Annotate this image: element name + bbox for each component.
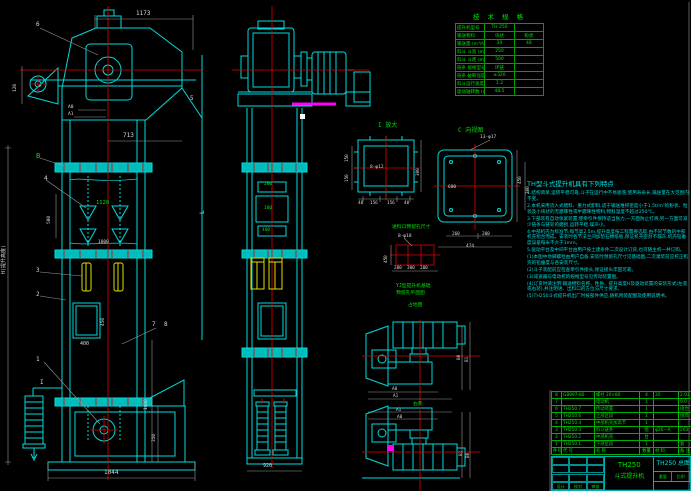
table-cell bbox=[514, 48, 543, 56]
table-row: 1TH250.1下部区段1套 bbox=[552, 441, 691, 448]
note-line: 1.结构简单,运转平稳可靠,斗子在运行中不易脱落,使用寿命长,输送量在大范围内不… bbox=[527, 191, 689, 203]
dimension-label: 右装 bbox=[413, 403, 423, 408]
table-cell: 1.2 bbox=[485, 80, 514, 88]
sign-label: 设计 bbox=[552, 482, 569, 490]
table-cell: 2.03 bbox=[679, 392, 691, 399]
dimension-label: 156 bbox=[387, 202, 395, 206]
table-cell: 9.0 bbox=[679, 399, 691, 406]
table-cell: 1 bbox=[552, 441, 562, 448]
table-row: 驱动轴转数 (r/min)48.5 bbox=[456, 88, 544, 96]
dimension-label: 400 bbox=[80, 342, 89, 347]
table-row: 5TH250.6上部区段1组焊 bbox=[552, 413, 691, 420]
table-cell: TH250.6 bbox=[562, 413, 595, 420]
dimension-label: B0 bbox=[458, 355, 462, 360]
dimension-label: 1173 bbox=[136, 11, 150, 17]
table-cell: 6 bbox=[552, 406, 562, 413]
table-row: 料斗 斗距 (mm)500 bbox=[456, 56, 544, 64]
dimension-label: 8 bbox=[164, 322, 168, 328]
note-line: 3.下部装有自动张紧装置,使牵引件保持适当张力,一方面防止打滑,另一方面可减少链… bbox=[527, 217, 689, 229]
dimension-label: 120 bbox=[14, 84, 19, 92]
dimension-label: 1 bbox=[36, 357, 40, 363]
table-cell bbox=[514, 88, 543, 96]
bom-table: 8GB897-86螺柱 20×804352.037电动机19.06TH250.7… bbox=[551, 391, 691, 455]
table-cell: 1 bbox=[640, 406, 654, 413]
table-cell: 上部区段 bbox=[595, 413, 640, 420]
dimension-label: A0 bbox=[392, 388, 397, 392]
note-line: (5)TH250斗式提升机出厂时按部件供应,随机附装配图及使用说明书。 bbox=[527, 294, 689, 300]
dimension-label: 6 bbox=[36, 22, 40, 28]
dimension-label: 8-φ12 bbox=[370, 166, 384, 171]
dimension-label: 占地图 bbox=[408, 304, 422, 309]
table-cell: 链条 规格型号 bbox=[456, 64, 485, 72]
table-cell: 7 bbox=[552, 399, 562, 406]
table-cell: 提升机型号 bbox=[456, 24, 485, 32]
cad-drawing-canvas: 61173120A0A17135B45001120100032LH(提升高度)4… bbox=[0, 0, 691, 491]
dimension-label: A0 bbox=[68, 106, 73, 111]
table-cell: 环链 bbox=[485, 64, 514, 72]
table-cell: 中部机壳加高节 bbox=[595, 420, 640, 427]
table-cell bbox=[654, 420, 679, 427]
table-cell: 48 bbox=[514, 40, 543, 48]
dimension-label: 150 bbox=[346, 174, 350, 182]
dimension-label: A1 bbox=[396, 409, 401, 413]
table-cell: ≥320 bbox=[485, 72, 514, 80]
dimension-label: 1400 bbox=[145, 399, 150, 410]
table-cell bbox=[514, 64, 543, 72]
table-cell: 8 bbox=[552, 392, 562, 399]
table-row: 件号代 号名 称数量材 料备 注 bbox=[552, 448, 691, 455]
notes-title: TH型斗式提升机具有下列特点 bbox=[527, 180, 689, 188]
dimension-label: 450 bbox=[519, 176, 523, 184]
dimension-label: 2 bbox=[36, 292, 40, 298]
machine-name-label: 斗式提升机 bbox=[605, 471, 653, 480]
dimension-label: L bbox=[200, 210, 206, 214]
dimension-label: I bbox=[40, 380, 44, 386]
dimension-label: 3 bbox=[36, 268, 40, 274]
dimension-label: 200 bbox=[420, 267, 428, 271]
table-cell: 数量 bbox=[640, 448, 654, 455]
notes-panel: TH型斗式提升机具有下列特点 1.结构简单,运转平稳可靠,斗子在运行中不易脱落,… bbox=[527, 180, 689, 301]
dimension-label: YJ型提升机基础 bbox=[396, 285, 431, 290]
table-cell: 螺柱 20×80 bbox=[595, 392, 640, 399]
dimension-label: B0 bbox=[467, 453, 471, 458]
dimension-label: 600 bbox=[448, 186, 456, 191]
dimension-label: 450 bbox=[385, 255, 389, 263]
dimension-label: B1 bbox=[466, 357, 470, 362]
dimension-label: 5 bbox=[190, 96, 194, 102]
table-cell bbox=[654, 413, 679, 420]
table-cell: 4 bbox=[640, 392, 654, 399]
note-line: 5.驱动平台及中间平台由用户按土建条件二次设计订货,也可随主机一并订购。 bbox=[527, 248, 689, 254]
dimension-label: 1000 bbox=[98, 241, 109, 246]
table-cell: 2 bbox=[552, 434, 562, 441]
table-row: 料斗运行速度 (m/s)1.2 bbox=[456, 80, 544, 88]
table-row: 提升机型号TH 250 bbox=[456, 24, 544, 32]
dimension-label: B bbox=[36, 153, 40, 160]
table-cell: 1 bbox=[640, 399, 654, 406]
dimension-label: 500 bbox=[48, 216, 53, 224]
table-cell bbox=[654, 399, 679, 406]
table-cell bbox=[562, 399, 595, 406]
spec-table-panel: 技 术 规 格 提升机型号TH 250输送物料块状粉状输送量 (m³/h)304… bbox=[455, 11, 544, 96]
dimension-label: 进料口预留孔尺寸 bbox=[392, 226, 430, 231]
table-cell: GB897-86 bbox=[562, 392, 595, 399]
side-elevation-view bbox=[238, 21, 370, 464]
table-cell: 30 bbox=[485, 40, 514, 48]
table-cell: 35 bbox=[654, 392, 679, 399]
detail-views bbox=[354, 136, 512, 478]
scale-label: 比例 bbox=[672, 472, 690, 481]
table-cell: 203 bbox=[679, 427, 691, 434]
table-cell: 输送物料 bbox=[456, 32, 485, 40]
dimension-label: A1 bbox=[68, 113, 73, 118]
table-cell: 4 bbox=[552, 420, 562, 427]
table-cell bbox=[514, 80, 543, 88]
model-label: TH250 bbox=[605, 461, 653, 469]
table-cell: 输送量 (m³/h) bbox=[456, 40, 485, 48]
dimension-label: 200 bbox=[482, 233, 490, 237]
dimension-label: B1 bbox=[460, 451, 464, 456]
dimension-label: A0 bbox=[397, 416, 402, 420]
magenta-marker bbox=[387, 445, 394, 451]
white-marker bbox=[300, 114, 305, 119]
table-row: 3TH250.3料斗链条组φ26—A203 bbox=[552, 427, 691, 434]
table-cell: TH250.3 bbox=[562, 427, 595, 434]
table-row: 输送量 (m³/h)3048 bbox=[456, 40, 544, 48]
table-cell: TH 250 bbox=[485, 24, 514, 32]
sign-label: 审核 bbox=[587, 482, 604, 490]
table-cell bbox=[679, 434, 691, 441]
table-row: 6TH250.7传动装置1组合 bbox=[552, 406, 691, 413]
dimension-label: 8-φ18 bbox=[398, 235, 412, 240]
table-cell: 块状 bbox=[485, 32, 514, 40]
table-cell: φ26—A bbox=[654, 427, 679, 434]
table-cell: 组 bbox=[640, 427, 654, 434]
dimension-label: 156 bbox=[370, 202, 378, 206]
table-row: 7电动机19.0 bbox=[552, 399, 691, 406]
dimension-label: 4 bbox=[44, 176, 48, 182]
dimension-label: 300 bbox=[417, 168, 421, 176]
dimension-label: 713 bbox=[123, 133, 134, 139]
table-cell bbox=[654, 441, 679, 448]
dimension-label: 300 bbox=[407, 267, 415, 271]
table-cell: 料斗链条 bbox=[595, 427, 640, 434]
table-cell bbox=[679, 420, 691, 427]
note-line: (1)本图中地脚螺栓由用户自备,安装时预留孔尺寸见基础图,二次灌浆前应校正机壳的… bbox=[527, 255, 689, 267]
table-cell bbox=[654, 434, 679, 441]
dimension-label: C 向视图 bbox=[458, 128, 483, 134]
dimension-label: 40 bbox=[358, 202, 363, 206]
table-cell bbox=[514, 72, 543, 80]
dimension-label: 200 bbox=[394, 267, 402, 271]
table-cell: TH250.2 bbox=[562, 434, 595, 441]
dimension-label: 350 bbox=[153, 434, 158, 442]
dimension-label: 1120 bbox=[96, 201, 109, 207]
title-block: 设计 校对 审核 TH250 斗式提升机 TH250 总图 重量 比例 bbox=[551, 456, 691, 491]
table-cell: 材 料 bbox=[654, 448, 679, 455]
table-cell bbox=[654, 406, 679, 413]
note-line: (2)斗子装配前应检查牵引件接头,保证接头牢固可靠。 bbox=[527, 268, 689, 274]
table-cell: 粉状 bbox=[514, 32, 543, 40]
table-cell: 组合 bbox=[679, 406, 691, 413]
dimension-label: I 放大 bbox=[378, 123, 397, 129]
table-cell: 名 称 bbox=[595, 448, 640, 455]
dimension-label: 13-φ17 bbox=[480, 136, 496, 141]
table-cell: 电动机 bbox=[595, 399, 640, 406]
table-cell: 1 bbox=[640, 441, 654, 448]
table-cell: TH250.4 bbox=[562, 420, 595, 427]
dimension-label: 920 bbox=[263, 464, 272, 469]
table-cell bbox=[514, 24, 543, 32]
table-cell: 件号 bbox=[552, 448, 562, 455]
signature-grid: 设计 校对 审核 bbox=[552, 457, 605, 490]
dimension-label: 1044 bbox=[104, 470, 118, 476]
table-row: 2TH250.2中部机壳台 bbox=[552, 434, 691, 441]
dimension-label: 40 bbox=[404, 202, 409, 206]
table-cell: 套 bbox=[679, 441, 691, 448]
dimension-label: 150 bbox=[346, 154, 350, 162]
drawing-title-cell: TH250 斗式提升机 bbox=[605, 457, 654, 490]
table-cell: 代 号 bbox=[562, 448, 595, 455]
table-row: 4TH250.4中部机壳加高节1 bbox=[552, 420, 691, 427]
table-cell: 料斗运行速度 (m/s) bbox=[456, 80, 485, 88]
table-cell: 500 bbox=[485, 56, 514, 64]
table-row: 链条 破断强度 (kN)≥320 bbox=[456, 72, 544, 80]
drawing-number-cell: TH250 总图 重量 比例 bbox=[654, 457, 690, 490]
table-cell: 驱动轴转数 (r/min) bbox=[456, 88, 485, 96]
table-cell: 台 bbox=[640, 434, 654, 441]
dimension-label: H(提升高度) bbox=[2, 245, 7, 274]
table-cell: TH250.7 bbox=[562, 406, 595, 413]
note-line: 2.本机采用流入式喂料、重力式卸料,适于输送堆积密度小于1.5t/m³的粉状、粒… bbox=[527, 204, 689, 216]
table-row: 输送物料块状粉状 bbox=[456, 32, 544, 40]
table-cell: 250 bbox=[485, 48, 514, 56]
bom-panel: 8GB897-86螺柱 20×804352.037电动机19.06TH250.7… bbox=[551, 391, 691, 455]
table-cell: 3 bbox=[552, 427, 562, 434]
table-cell: 5 bbox=[552, 413, 562, 420]
dimension-label: 400 bbox=[262, 229, 270, 234]
table-cell: 48.5 bbox=[485, 88, 514, 96]
table-cell: 下部区段 bbox=[595, 441, 640, 448]
table-cell bbox=[514, 56, 543, 64]
table-cell: 组焊 bbox=[679, 413, 691, 420]
table-row: 8GB897-86螺柱 20×804352.03 bbox=[552, 392, 691, 399]
table-cell: 1 bbox=[640, 420, 654, 427]
note-line: (4)订货时请注明:输送物料名称、性质、提升高度H及驱动装置的安装形式(左装或右… bbox=[527, 282, 689, 294]
dimension-label: 7 bbox=[152, 322, 156, 328]
spec-table-title: 技 术 规 格 bbox=[455, 11, 544, 21]
weight-label: 重量 bbox=[654, 472, 672, 481]
table-cell: 料斗 斗距 (mm) bbox=[456, 56, 485, 64]
table-cell: 备 注 bbox=[679, 448, 691, 455]
dimension-label: 260 bbox=[452, 233, 460, 237]
note-line: (3)减速器与电动机的规格型号见传动装置图。 bbox=[527, 275, 689, 281]
table-cell: 链条 破断强度 (kN) bbox=[456, 72, 485, 80]
table-row: 链条 规格型号环链 bbox=[456, 64, 544, 72]
dimension-label: 474 bbox=[466, 245, 474, 250]
notes-body: 1.结构简单,运转平稳可靠,斗子在运行中不易脱落,使用寿命长,输送量在大范围内不… bbox=[527, 191, 689, 300]
note-line: 4.中部机壳为标准节,每节高2.5m,提升高度按工程需要选取,由不同节数的中部机… bbox=[527, 230, 689, 248]
sign-label: 校对 bbox=[569, 482, 586, 490]
table-cell: 中部机壳 bbox=[595, 434, 640, 441]
dimension-label: A1 bbox=[393, 395, 398, 399]
dimension-label: 180 bbox=[264, 207, 272, 212]
dimension-label: 450 bbox=[102, 318, 107, 326]
table-cell: 传动装置 bbox=[595, 406, 640, 413]
table-row: 料斗 斗宽 (mm)250 bbox=[456, 48, 544, 56]
table-cell: TH250.1 bbox=[562, 441, 595, 448]
dimension-label: 预留孔平面图 bbox=[396, 292, 425, 297]
spec-table: 提升机型号TH 250输送物料块状粉状输送量 (m³/h)3048料斗 斗宽 (… bbox=[455, 23, 544, 96]
table-cell: 1 bbox=[640, 413, 654, 420]
table-cell: 料斗 斗宽 (mm) bbox=[456, 48, 485, 56]
dimension-label: 260 bbox=[264, 183, 272, 188]
drawing-number: TH250 总图 bbox=[654, 457, 690, 472]
